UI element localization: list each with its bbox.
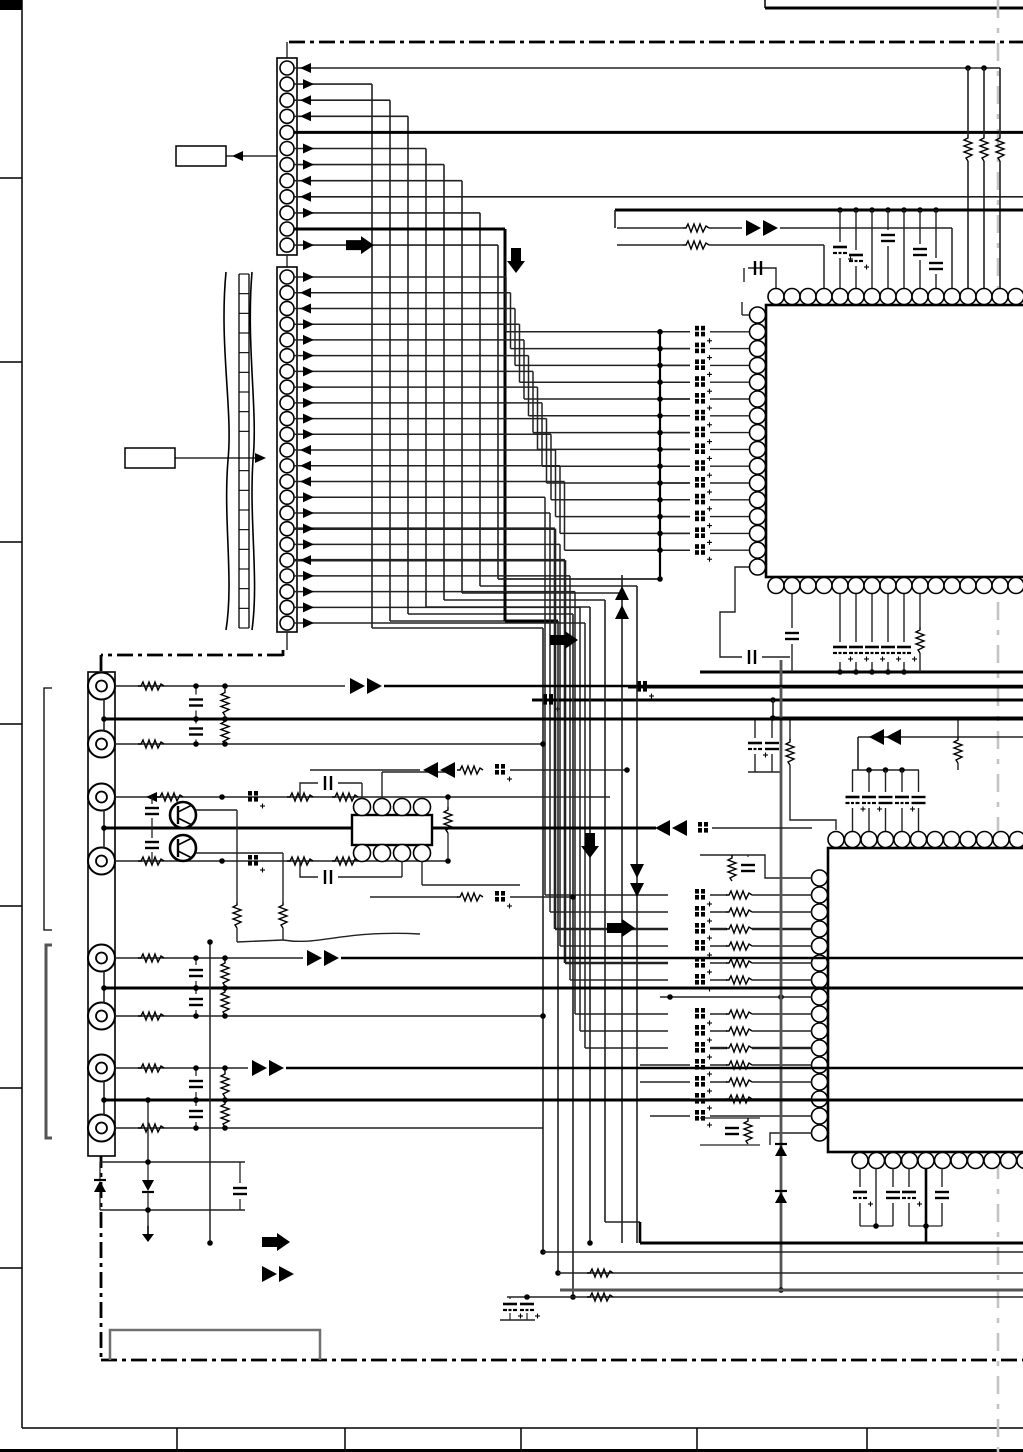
ferrite-bead [695,343,699,348]
connector-pin [869,1153,885,1169]
junction-dot [540,1013,546,1019]
signal-arrow [423,762,438,778]
ferrite-bead [695,511,699,516]
junction-dot [145,1207,151,1213]
connector-pin [280,333,294,347]
ferrite-bead [701,416,705,421]
ferrite-bead [701,500,705,505]
resistor [726,925,752,933]
junction-dot [222,741,228,747]
resistor [726,942,752,950]
diode [775,1192,787,1203]
ferrite-bead [695,533,699,538]
signal-arrow [655,820,670,836]
ferrite-bead [701,349,705,354]
resistor [279,902,287,928]
ferrite-bead [254,861,258,866]
connector-pin [896,289,912,305]
junction-dot [193,985,199,991]
connector-pin [280,553,294,567]
resistor [726,891,752,899]
ferrite-bead [695,427,699,432]
connector-pin [812,921,828,937]
connector-pin [280,206,294,220]
direction-arrow [303,351,314,361]
signal-arrow [746,220,761,236]
ferrite-bead [695,483,699,488]
ferrite-bead [695,929,699,934]
resistor [233,902,241,928]
ferrite-bead [695,416,699,421]
ferrite-bead [495,764,499,769]
connector-pin [280,142,294,156]
junction-dot [837,669,843,675]
resistor [964,135,972,161]
junction-dot [657,497,663,503]
ferrite-bead [701,1059,705,1064]
ferrite-bead [695,980,699,985]
resistor [221,960,229,986]
resistor [457,766,483,774]
junction-dot [667,994,673,1000]
rca-jack [96,681,107,692]
junction-dot [193,955,199,961]
junction-dot [222,683,228,689]
connector-pin [880,578,896,594]
callout-1 [176,146,277,166]
connector-pin [280,459,294,473]
connector-pin [902,1153,918,1169]
connector-pin [280,61,294,75]
board-notch [110,1330,320,1360]
direction-arrow [303,382,314,392]
connector-pin [812,1074,828,1090]
connector-pin [812,1057,828,1073]
connector-pin [750,307,766,323]
ferrite-bead [695,527,699,532]
resistor [954,737,962,763]
ferrite-bead [695,365,699,370]
ferrite-bead [701,443,705,448]
rca-jack [96,1011,107,1022]
ic-body [352,815,432,845]
corner-mark [0,0,22,10]
ferrite-bead [695,494,699,499]
connector-pin [1008,578,1023,594]
connector-pin [784,578,800,594]
rca-jack [96,1123,107,1134]
junction-dot [657,531,663,537]
ferrite-bead [701,376,705,381]
direction-arrow [303,492,314,502]
ferrite-bead [701,343,705,348]
ferrite-bead [549,700,553,705]
connector-pin [812,887,828,903]
transistor-pair [145,797,420,1246]
ferrite-bead [695,517,699,522]
resistor [683,241,709,249]
junction-dot [657,363,663,369]
connector-pin [816,289,832,305]
connector-pin [750,341,766,357]
connector-pin [280,270,294,284]
connector-pin [912,578,928,594]
connector-pin [280,109,294,123]
ferrite-bead [695,1042,699,1047]
block-arrow [607,919,635,937]
rca-jack [96,792,107,803]
main-ic [750,289,1023,594]
junction-dot [657,329,663,335]
ferrite-bead [643,687,647,692]
connector-pin [768,289,784,305]
ferrite-bead [501,891,505,896]
ferrite-bead [701,1025,705,1030]
resistor [916,627,924,653]
wire [283,933,420,941]
signal-arrow [307,950,322,966]
ferrite-bead [254,855,258,860]
diode [94,1181,106,1192]
junction-dot [193,741,199,747]
connector-pin [944,578,960,594]
ribbon-edge [224,272,229,630]
ferrite-bead [695,940,699,945]
ferrite-bead [698,828,702,833]
ferrite-bead [695,1031,699,1036]
direction-arrow [303,429,314,439]
connector-pin [280,158,294,172]
ferrite-bead [248,797,252,802]
connector-pin [750,324,766,340]
ferrite-bead [701,477,705,482]
connector-pin [280,490,294,504]
ferrite-bead [695,1110,699,1115]
connector-pin [812,989,828,1005]
connector-pin [280,286,294,300]
ferrite-bead [701,365,705,370]
connector-pin [812,1125,828,1141]
junction-dot [624,767,630,773]
connector-pin [1001,1153,1017,1169]
connector-pin [927,832,943,848]
connector-pin [944,289,960,305]
signal-arrow [252,1060,267,1076]
connector-pin [848,578,864,594]
connector-pin [750,441,766,457]
junction-dot [853,669,859,675]
ferrite-bead [701,980,705,985]
ferrite-bead [695,923,699,928]
connector-pin [960,289,976,305]
resistor [726,1078,752,1086]
ferrite-bead [501,897,505,902]
connector-pin [812,870,828,886]
ferrite-bead [695,349,699,354]
junction-dot [222,985,228,991]
ferrite-bead [701,511,705,516]
junction-dot [869,669,875,675]
bracket [44,688,52,930]
junction-dot [657,396,663,402]
ferrite-bead [701,399,705,404]
ferrite-bead [695,410,699,415]
ferrite-bead [695,889,699,894]
ferrite-bead [701,929,705,934]
connector-pin [280,537,294,551]
ferrite-bead [254,791,258,796]
ferrite-bead [695,906,699,911]
direction-arrow [300,111,311,121]
resistor [683,224,709,232]
connector-pin [280,616,294,630]
junction-dot [193,1097,199,1103]
connector-pin [848,289,864,305]
block-arrow [507,248,525,273]
ferrite-bead [695,1025,699,1030]
connector-pin [374,799,391,816]
ferrite-bead [701,433,705,438]
connector-pin [280,349,294,363]
ferrite-bead [695,912,699,917]
ic-body [766,305,1023,577]
page-frame [0,0,1023,1428]
signal-arrow [886,729,901,745]
direction-arrow [300,95,311,105]
ferrite-bead [701,544,705,549]
connector-pin [280,301,294,315]
resistor [221,690,229,716]
junction-dot [445,794,451,800]
connector-pin [928,289,944,305]
connector-pin [280,93,294,107]
connector-pin [280,238,294,252]
resistor [744,1118,752,1144]
connector-pin [1008,289,1023,305]
direction-arrow [303,398,314,408]
connector-pin [280,427,294,441]
ferrite-bead [695,399,699,404]
ferrite-bead [701,946,705,951]
ferrite-bead [701,1076,705,1081]
direction-arrow [300,461,311,471]
connector-pin [280,190,294,204]
rca-jack [96,856,107,867]
ferrite-bead [701,923,705,928]
direction-arrow [303,366,314,376]
junction-dot [873,1223,879,1229]
label-box [176,146,226,166]
signal-arrow [869,729,884,745]
ferrite-bead [701,1008,705,1013]
junction-dot [222,1125,228,1131]
connector-pin [960,578,976,594]
connector-pin [750,391,766,407]
direction-arrow [300,176,311,186]
schematic-page [0,0,1023,1452]
signal-arrow [269,1060,284,1076]
ferrite-bead [695,393,699,398]
junction-dot [219,794,225,800]
junction-dot [540,741,546,747]
ferrite-bead [701,533,705,538]
ferrite-bead [254,797,258,802]
ferrite-bead [695,477,699,482]
label-box [125,448,175,468]
transistor [170,802,196,828]
direction-arrow [303,240,314,250]
resistor [726,1010,752,1018]
direction-arrow [303,571,314,581]
direction-arrow [255,453,266,463]
junction-dot [193,1013,199,1019]
connector-pin [1017,1153,1023,1169]
ferrite-bead [695,544,699,549]
connector-pin [885,1153,901,1169]
ferrite-bead [701,332,705,337]
ground [142,1234,154,1242]
connector-pin [951,1153,967,1169]
junction-dot [657,463,663,469]
ferrite-bead [695,946,699,951]
connector-pin [968,1153,984,1169]
junction-dot [222,716,228,722]
ferrite-bead [695,332,699,337]
resistor [728,855,736,881]
connector-pin [984,1153,1000,1169]
junction-dot [145,1097,151,1103]
connector-pin [864,289,880,305]
wire [300,861,318,877]
connector-pin [828,832,844,848]
connector-pin [280,396,294,410]
ferrite-bead [695,433,699,438]
junction-dot [219,858,225,864]
ferrite-bead [549,694,553,699]
resistor [726,1044,752,1052]
junction-dot [222,1013,228,1019]
connector-pin [912,289,928,305]
connector-pin [280,174,294,188]
resistor [221,989,229,1015]
ferrite-bead [695,1076,699,1081]
direction-arrow [300,555,311,565]
signal-arrow [630,864,644,878]
secondary-ic-bottom [853,1168,949,1243]
direction-arrow [303,335,314,345]
connector-pin [280,380,294,394]
ferrite-bead [701,427,705,432]
ferrite-bead [495,770,499,775]
connector-pin [768,578,784,594]
connector-pin [976,289,992,305]
connector-pin [832,578,848,594]
ferrite-bead [695,1082,699,1087]
flex-connector-wires [294,272,690,1048]
junction-dot [524,1294,530,1300]
rca-jack [96,1063,107,1074]
connector-pin [280,585,294,599]
rca-jack [96,739,107,750]
direction-arrow [303,144,314,154]
ferrite-bead [701,940,705,945]
ferrite-bead [701,1014,705,1019]
junction-dot [570,894,576,900]
connector-pin [280,125,294,139]
ferrite-bead [695,1008,699,1013]
direction-arrow [303,414,314,424]
transistor [170,835,196,861]
connector-pin [800,578,816,594]
ferrite-bead [695,550,699,555]
ferrite-bead [701,889,705,894]
ferrite-bead [701,895,705,900]
bracket [46,945,52,1138]
ferrite-bead [701,550,705,555]
ferrite-bead [701,517,705,522]
rca-jack [96,953,107,964]
connector-pin [750,542,766,558]
junction-dot [657,576,663,582]
ferrite-bead [701,483,705,488]
connector-pin [845,832,861,848]
connector-pin [852,1153,868,1169]
resistor [457,893,483,901]
junction-dot [657,430,663,436]
signal-arrow [262,1266,277,1282]
connector-pin [812,1006,828,1022]
resistor [221,719,229,745]
connector-pin [280,77,294,91]
junction-dot [445,858,451,864]
connector-pin [812,904,828,920]
connector-pin [750,492,766,508]
connector-pin [832,289,848,305]
direction-arrow [303,587,314,597]
ferrite-bead [701,974,705,979]
direction-arrow [303,602,314,612]
resistor [980,135,988,161]
connector-pin [976,578,992,594]
ferrite-bead [701,359,705,364]
connector-pin [896,578,912,594]
ferrite-bead [695,359,699,364]
connector-pin [280,569,294,583]
resistor [221,1101,229,1127]
bottom-rails [500,1243,1023,1320]
connector-pin [935,1153,951,1169]
callout-2 [125,448,266,468]
connector-pin [812,1023,828,1039]
connector-pin [750,408,766,424]
connector-pin [280,506,294,520]
direction-arrow [303,208,314,218]
connector-pin [993,832,1009,848]
junction-dot [207,939,213,945]
connector-pin [394,799,411,816]
connector-pin [864,578,880,594]
junction-dot [923,1223,929,1229]
connector-pin [992,578,1008,594]
ferrite-bead [495,897,499,902]
junction-dot [145,1159,151,1165]
direction-arrow [232,151,243,161]
ferrite-bead [701,963,705,968]
ferrite-bead [495,891,499,896]
direction-arrow [303,79,314,89]
ferrite-bead [695,382,699,387]
schematic-drawing [0,0,1023,1452]
